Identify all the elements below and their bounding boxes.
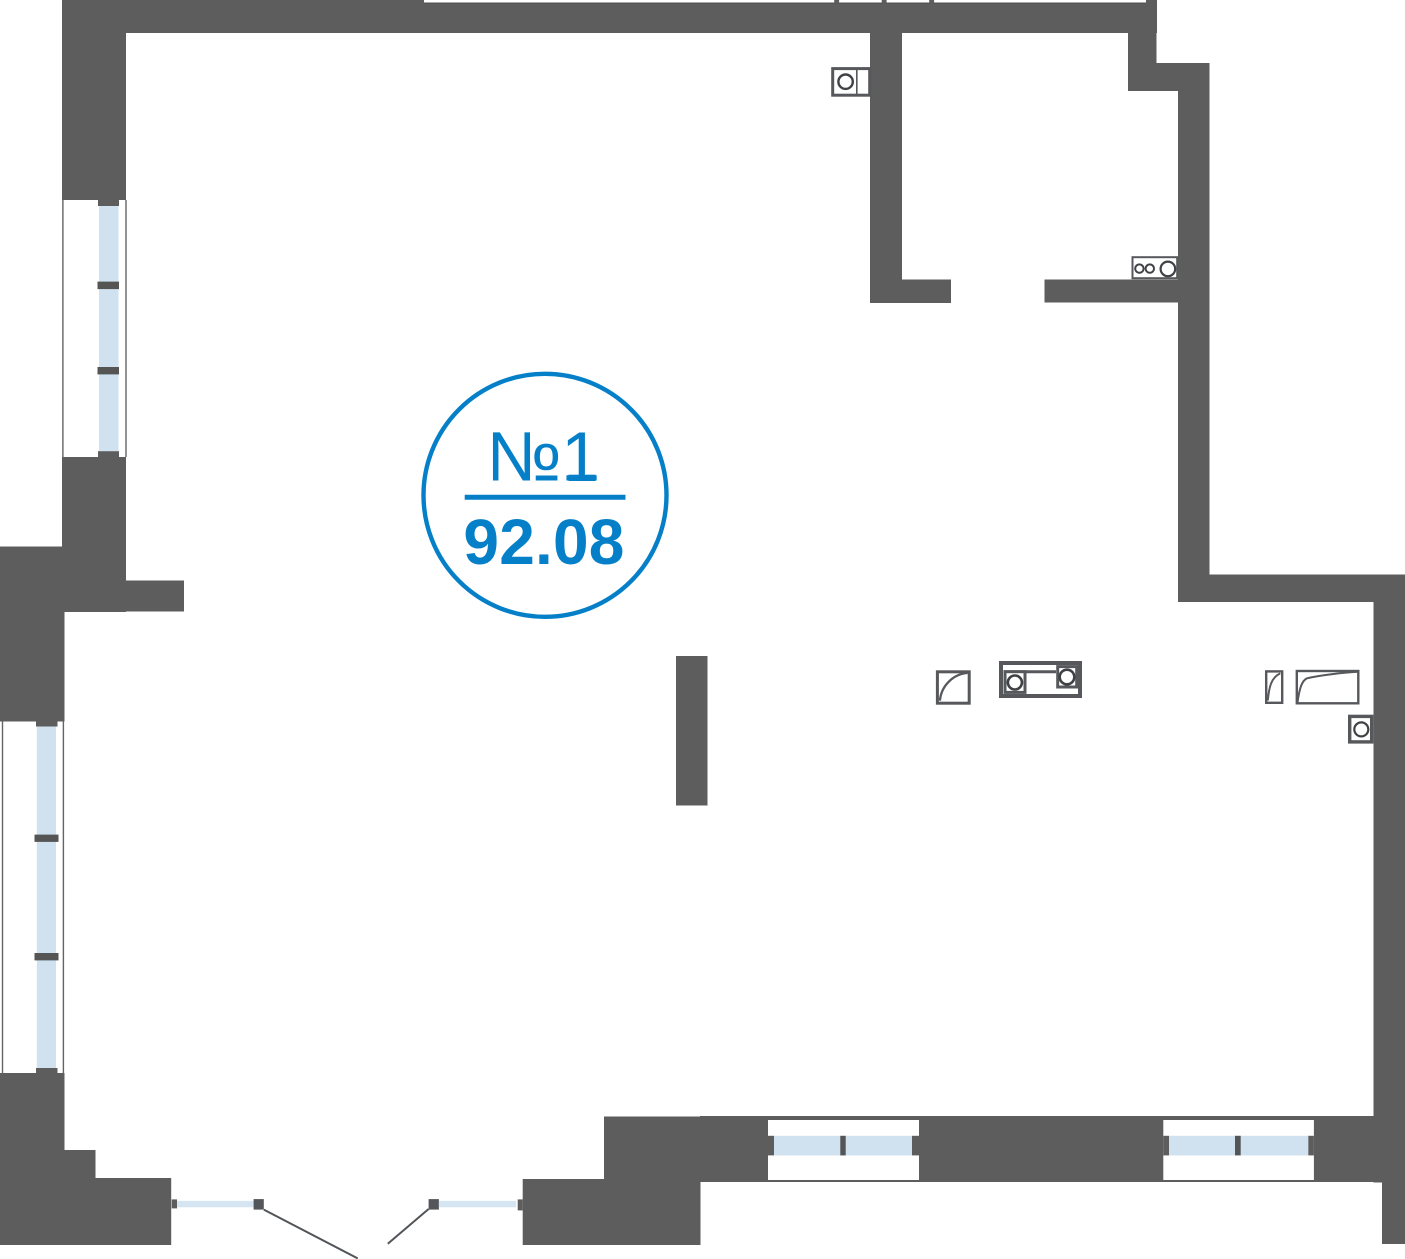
svg-text:92.08: 92.08	[463, 506, 624, 578]
svg-text:№1: №1	[486, 418, 599, 496]
